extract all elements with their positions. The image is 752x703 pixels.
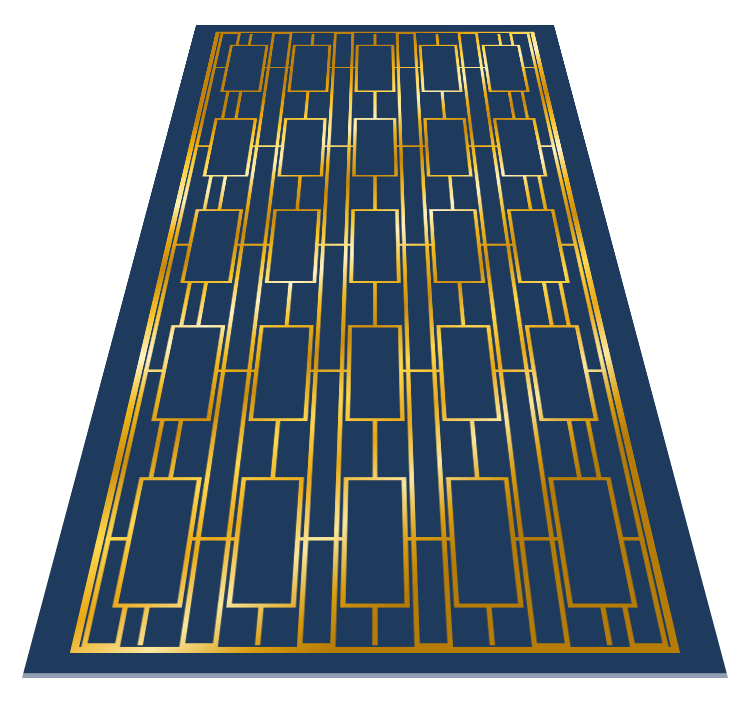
rug-graphic [22,25,728,678]
scene [0,0,752,703]
rug-bottom-edge [22,673,728,678]
rug [22,25,728,678]
